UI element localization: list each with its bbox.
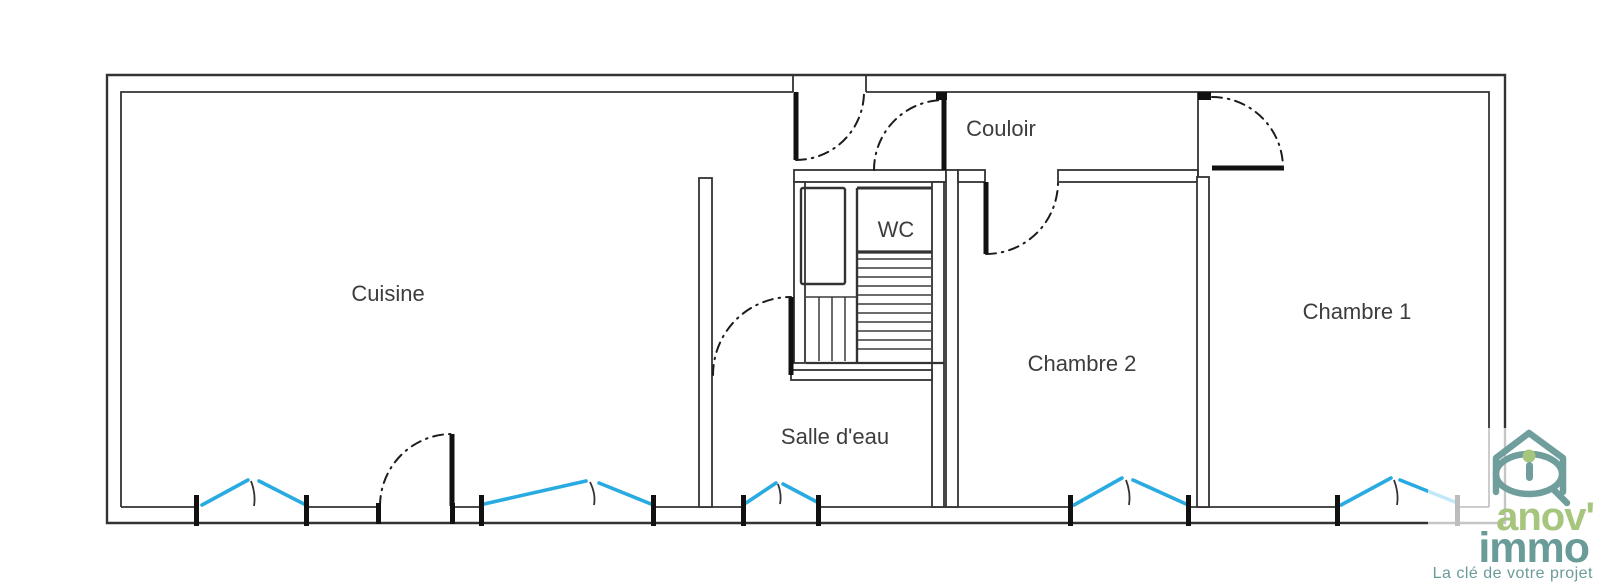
salle-deau-window-sashes	[746, 483, 817, 503]
cuisine-window-2-sashes	[484, 481, 651, 504]
salle-deau-window	[741, 483, 821, 526]
outer-boundary	[107, 75, 1505, 523]
cuisine-window-1-sashes	[202, 480, 304, 505]
interior-walls	[699, 92, 1211, 507]
logo-tagline: La clé de votre projet	[1433, 565, 1593, 582]
windows	[194, 478, 1460, 526]
wall-stair-block-left	[794, 182, 805, 363]
chambre-1-door-swing-arc	[1212, 97, 1283, 168]
keyhole-dot	[1523, 450, 1536, 463]
salle-deau-door	[713, 297, 791, 375]
floor-plan-page: Cuisine Couloir WC Salle d'eau Chambre 2…	[0, 0, 1600, 586]
wall-stair-block-top	[794, 170, 946, 182]
cuisine-window-1-center-arc	[251, 481, 255, 506]
floor-plan-drawing: Cuisine Couloir WC Salle d'eau Chambre 2…	[0, 0, 1600, 586]
closet-box	[801, 188, 845, 284]
wall-couloir-bottom-left	[958, 170, 985, 182]
entrance-door	[796, 92, 864, 160]
keyhole-stem	[1526, 462, 1533, 481]
couloir-door	[874, 100, 944, 170]
doors	[376, 92, 1284, 524]
cuisine-exterior-door-swing-arc	[380, 434, 452, 506]
cuisine-window-2-center-arc	[590, 482, 595, 505]
chambre-2-door-swing-arc	[986, 182, 1058, 254]
chambre-1-door	[1212, 97, 1284, 168]
wall-chambre-separator	[1197, 177, 1209, 507]
couloir-door-swing-arc	[874, 100, 944, 170]
label-chambre-1: Chambre 1	[1303, 299, 1412, 324]
label-couloir: Couloir	[966, 116, 1036, 141]
chambre-1-window-center-arc	[1394, 480, 1398, 505]
wall-chambre2-left	[946, 170, 958, 507]
label-cuisine: Cuisine	[351, 281, 424, 306]
label-chambre-2: Chambre 2	[1028, 351, 1137, 376]
salle-deau-door-swing-arc	[713, 297, 791, 375]
cuisine-window-2	[479, 481, 656, 526]
agency-logo: anov' immo La clé de votre projet	[1428, 428, 1600, 586]
entrance-door-swing-arc	[796, 92, 864, 160]
stair-treads-lower	[806, 297, 857, 361]
label-salle-deau: Salle d'eau	[781, 424, 889, 449]
salle-deau-window-center-arc	[778, 484, 781, 504]
stair-treads-upper	[858, 259, 931, 349]
wall-couloir-bottom-right	[1058, 170, 1198, 182]
staircase	[801, 188, 944, 363]
cuisine-exterior-door-jambs	[376, 503, 455, 524]
exterior-walls	[107, 75, 1505, 523]
wall-cuisine-hall	[699, 178, 712, 507]
wall-core-right	[932, 182, 944, 507]
jamb-chambre1-door	[1198, 92, 1211, 100]
jamb-couloir-door	[936, 92, 947, 100]
chambre-2-window	[1068, 478, 1191, 526]
chambre-2-window-center-arc	[1126, 480, 1130, 505]
chambre-2-door	[986, 182, 1058, 254]
cuisine-exterior-door	[376, 434, 455, 524]
cuisine-window-1	[194, 480, 309, 526]
label-wc: WC	[878, 217, 915, 242]
wall-salle-deau-top	[791, 370, 932, 380]
